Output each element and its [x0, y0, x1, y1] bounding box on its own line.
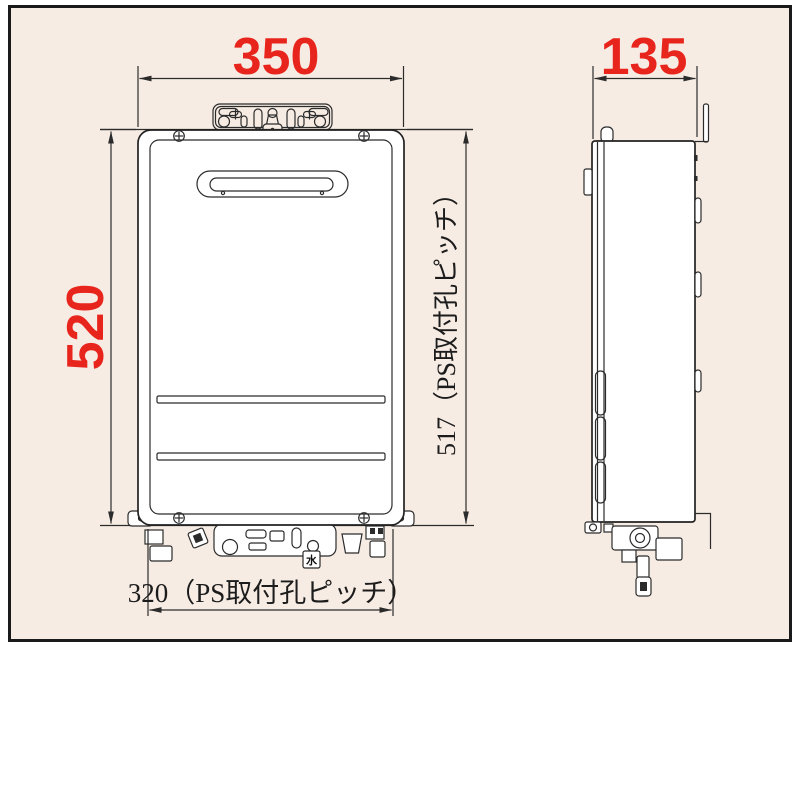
dim-height-label: 520: [57, 284, 115, 371]
dimension-drawing: 水: [0, 0, 800, 800]
screw-top-right: [359, 131, 370, 142]
dim-pitch-horizontal-label: 320（PS取付孔ピッチ）: [128, 578, 415, 608]
front-body: [138, 130, 404, 525]
screw-bottom-right: [359, 513, 370, 524]
technical-drawing-page: 水: [0, 0, 800, 800]
side-top-wall-bracket: [704, 104, 709, 142]
side-bottom-foot: [585, 522, 601, 533]
screw-top-left: [174, 131, 185, 142]
dim-width-label: 350: [233, 28, 320, 86]
side-view: [584, 104, 711, 596]
water-tag-label: 水: [306, 553, 318, 567]
side-front-tab: [584, 169, 592, 195]
water-tag: 水: [303, 551, 320, 568]
dim-pitch-vertical-label: 517（PS取付孔ピッチ）: [432, 180, 461, 456]
side-body: [592, 141, 695, 522]
top-mount-bracket: [213, 104, 332, 133]
drain-cup: [342, 534, 362, 553]
dim-depth-label: 135: [601, 28, 688, 86]
screw-bottom-left: [174, 513, 185, 524]
